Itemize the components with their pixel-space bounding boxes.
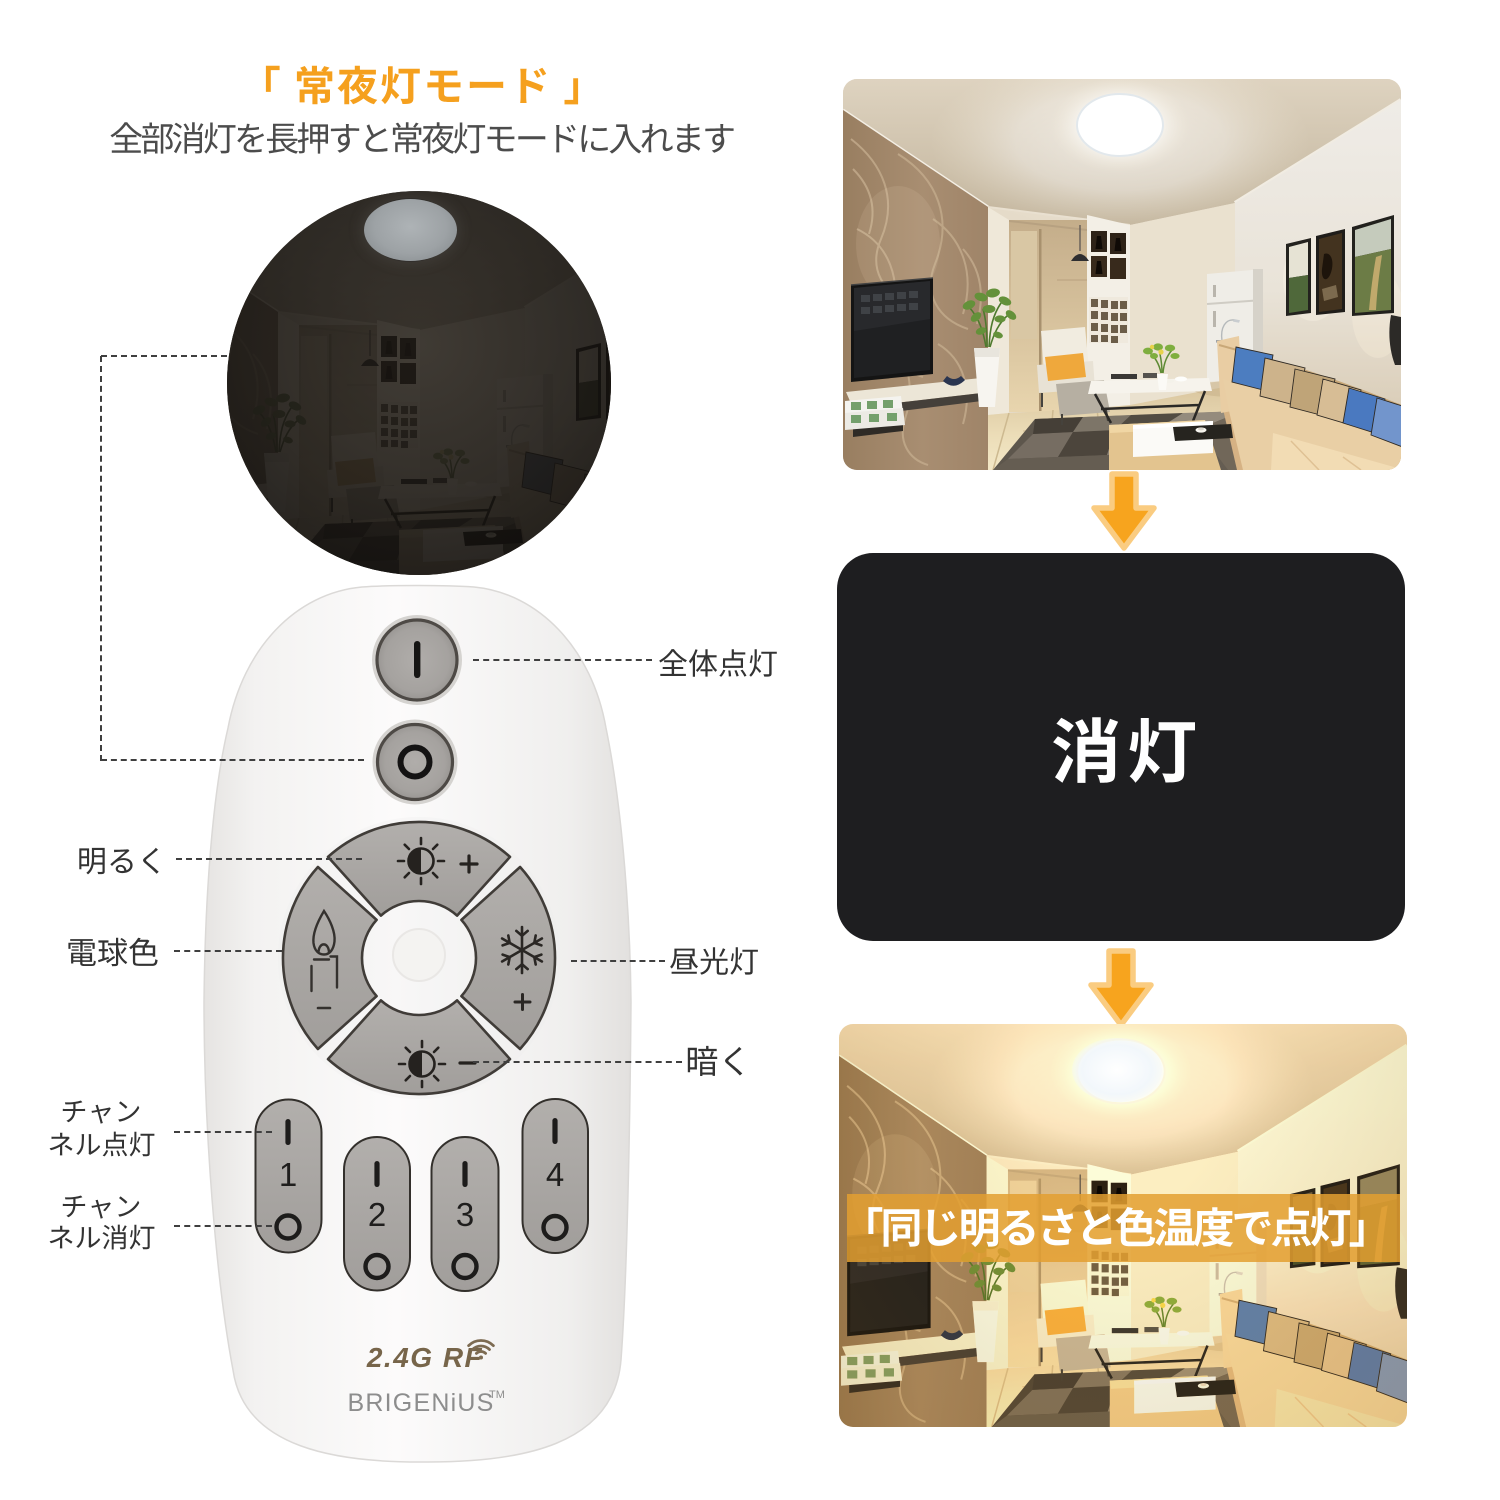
svg-text:1: 1	[279, 1156, 297, 1193]
svg-text:3: 3	[456, 1196, 474, 1233]
svg-text:TM: TM	[489, 1389, 505, 1401]
svg-text:2.4G RF: 2.4G RF	[366, 1342, 483, 1373]
svg-text:BRIGENiUS: BRIGENiUS	[348, 1389, 495, 1417]
svg-text:4: 4	[546, 1156, 564, 1193]
svg-text:2: 2	[368, 1196, 386, 1233]
